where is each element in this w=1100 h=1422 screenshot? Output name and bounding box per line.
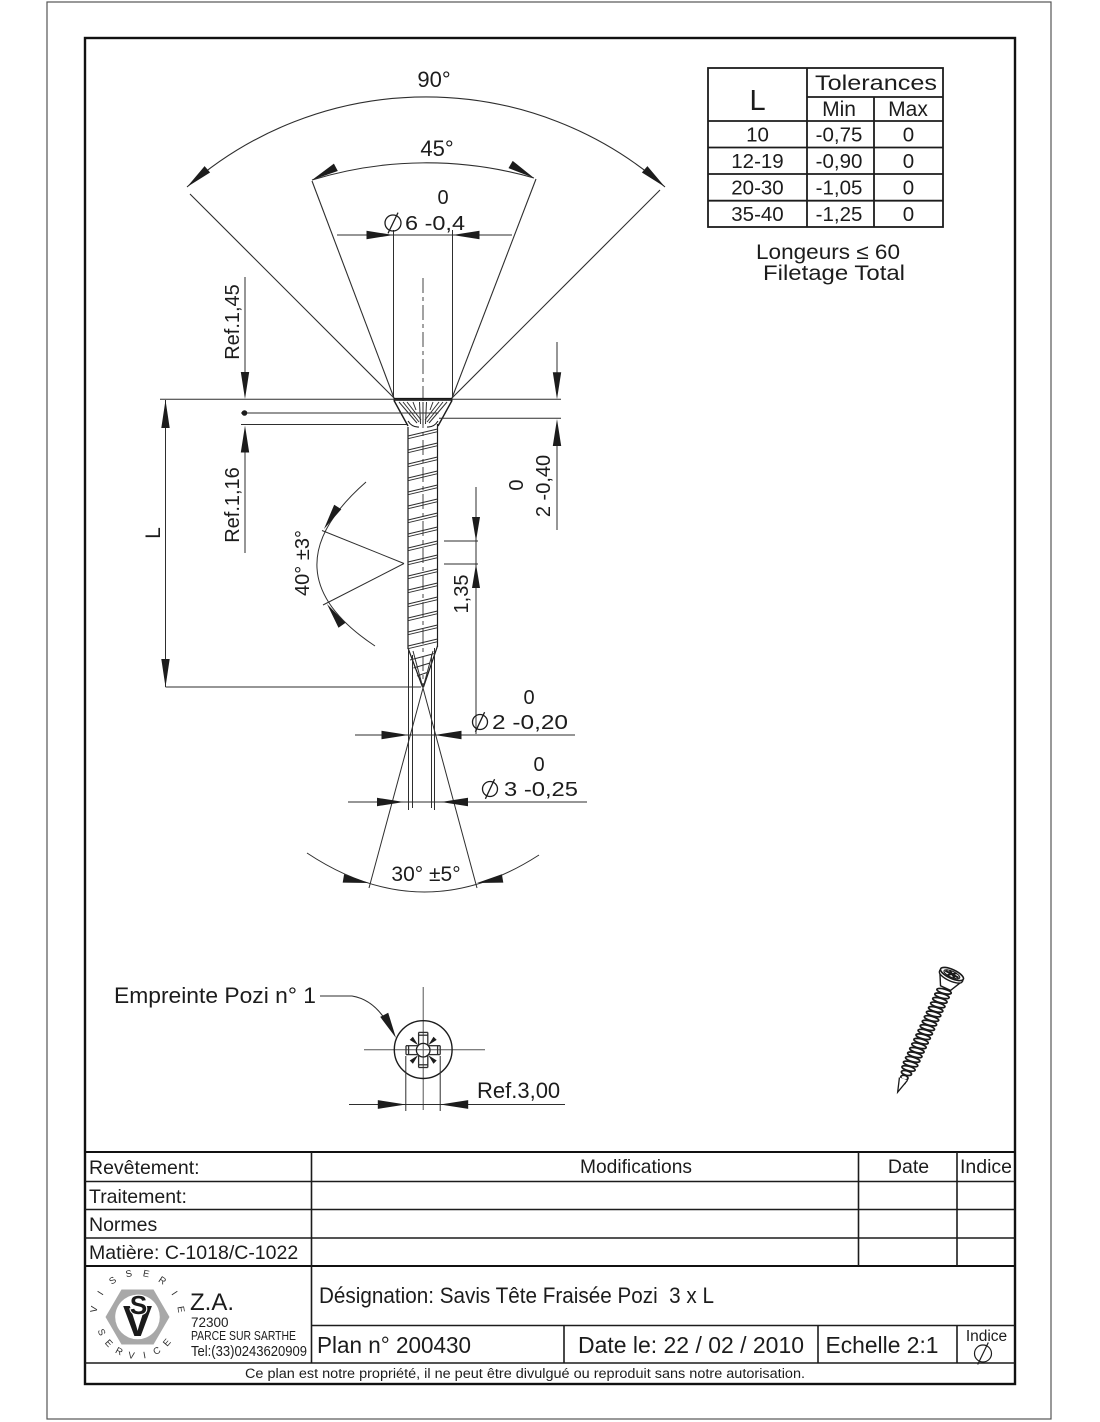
svg-text:0: 0 <box>903 203 914 226</box>
svg-text:L: L <box>142 527 165 539</box>
svg-text:Traitement:: Traitement: <box>89 1186 187 1208</box>
svg-text:3 -0,25: 3 -0,25 <box>504 779 578 801</box>
svg-text:-0,75: -0,75 <box>816 124 863 147</box>
svg-text:Indice: Indice <box>966 1328 1007 1345</box>
svg-text:90°: 90° <box>417 67 450 92</box>
svg-text:0: 0 <box>523 687 534 709</box>
svg-text:Max: Max <box>888 98 928 121</box>
svg-text:Revêtement:: Revêtement: <box>89 1157 200 1179</box>
svg-text:35-40: 35-40 <box>731 203 783 226</box>
svg-text:12-19: 12-19 <box>731 150 783 173</box>
svg-text:S: S <box>130 1290 147 1320</box>
svg-text:Matière: C-1018/C-1022: Matière: C-1018/C-1022 <box>89 1242 298 1264</box>
svg-text:45°: 45° <box>420 136 453 161</box>
svg-text:0: 0 <box>903 124 914 147</box>
svg-text:-0,90: -0,90 <box>816 150 863 173</box>
svg-text:Plan n° 200430: Plan n° 200430 <box>317 1332 471 1358</box>
svg-text:Tolerances: Tolerances <box>815 72 937 95</box>
svg-text:Date: Date <box>888 1156 929 1178</box>
svg-text:0: 0 <box>903 177 914 200</box>
svg-text:Modifications: Modifications <box>580 1156 692 1178</box>
svg-text:1,35: 1,35 <box>451 575 473 614</box>
svg-text:Longeurs ≤ 60: Longeurs ≤ 60 <box>756 241 900 264</box>
svg-text:Ref.1,16: Ref.1,16 <box>222 467 244 543</box>
svg-text:Ref.1,45: Ref.1,45 <box>222 284 244 360</box>
svg-text:6 -0,4: 6 -0,4 <box>405 213 465 235</box>
svg-text:0: 0 <box>506 479 528 490</box>
svg-text:Ce plan est notre propriété, i: Ce plan est notre propriété, il ne peut … <box>245 1366 805 1381</box>
svg-text:Min: Min <box>822 98 856 121</box>
svg-text:-1,05: -1,05 <box>816 177 863 200</box>
svg-text:0: 0 <box>533 754 544 776</box>
svg-text:Echelle 2:1: Echelle 2:1 <box>826 1332 939 1358</box>
svg-text:30° ±5°: 30° ±5° <box>391 863 460 886</box>
svg-text:0: 0 <box>903 150 914 173</box>
svg-text:-1,25: -1,25 <box>816 203 863 226</box>
svg-text:Filetage Total: Filetage Total <box>763 262 905 285</box>
svg-text:L: L <box>749 85 765 117</box>
svg-text:Empreinte Pozi n° 1: Empreinte Pozi n° 1 <box>114 983 316 1008</box>
svg-text:Désignation: Savis Tête Fraisé: Désignation: Savis Tête Fraisée Pozi 3 x… <box>319 1283 714 1308</box>
svg-text:Indice: Indice <box>960 1156 1012 1178</box>
svg-text:2 -0,20: 2 -0,20 <box>492 712 568 734</box>
svg-text:Normes: Normes <box>89 1214 158 1236</box>
svg-text:10: 10 <box>746 124 769 147</box>
svg-text:40° ±3°: 40° ±3° <box>292 530 314 596</box>
svg-text:2 -0,40: 2 -0,40 <box>533 455 555 517</box>
svg-text:0: 0 <box>437 187 448 209</box>
svg-text:PARCE SUR SARTHE: PARCE SUR SARTHE <box>191 1328 296 1343</box>
svg-text:Date le: 22 / 02 / 2010: Date le: 22 / 02 / 2010 <box>578 1332 804 1358</box>
svg-text:Z.A.: Z.A. <box>190 1289 234 1316</box>
svg-text:Tel:(33)0243620909: Tel:(33)0243620909 <box>191 1344 307 1360</box>
svg-text:Ref.3,00: Ref.3,00 <box>477 1078 560 1103</box>
svg-text:20-30: 20-30 <box>731 177 783 200</box>
